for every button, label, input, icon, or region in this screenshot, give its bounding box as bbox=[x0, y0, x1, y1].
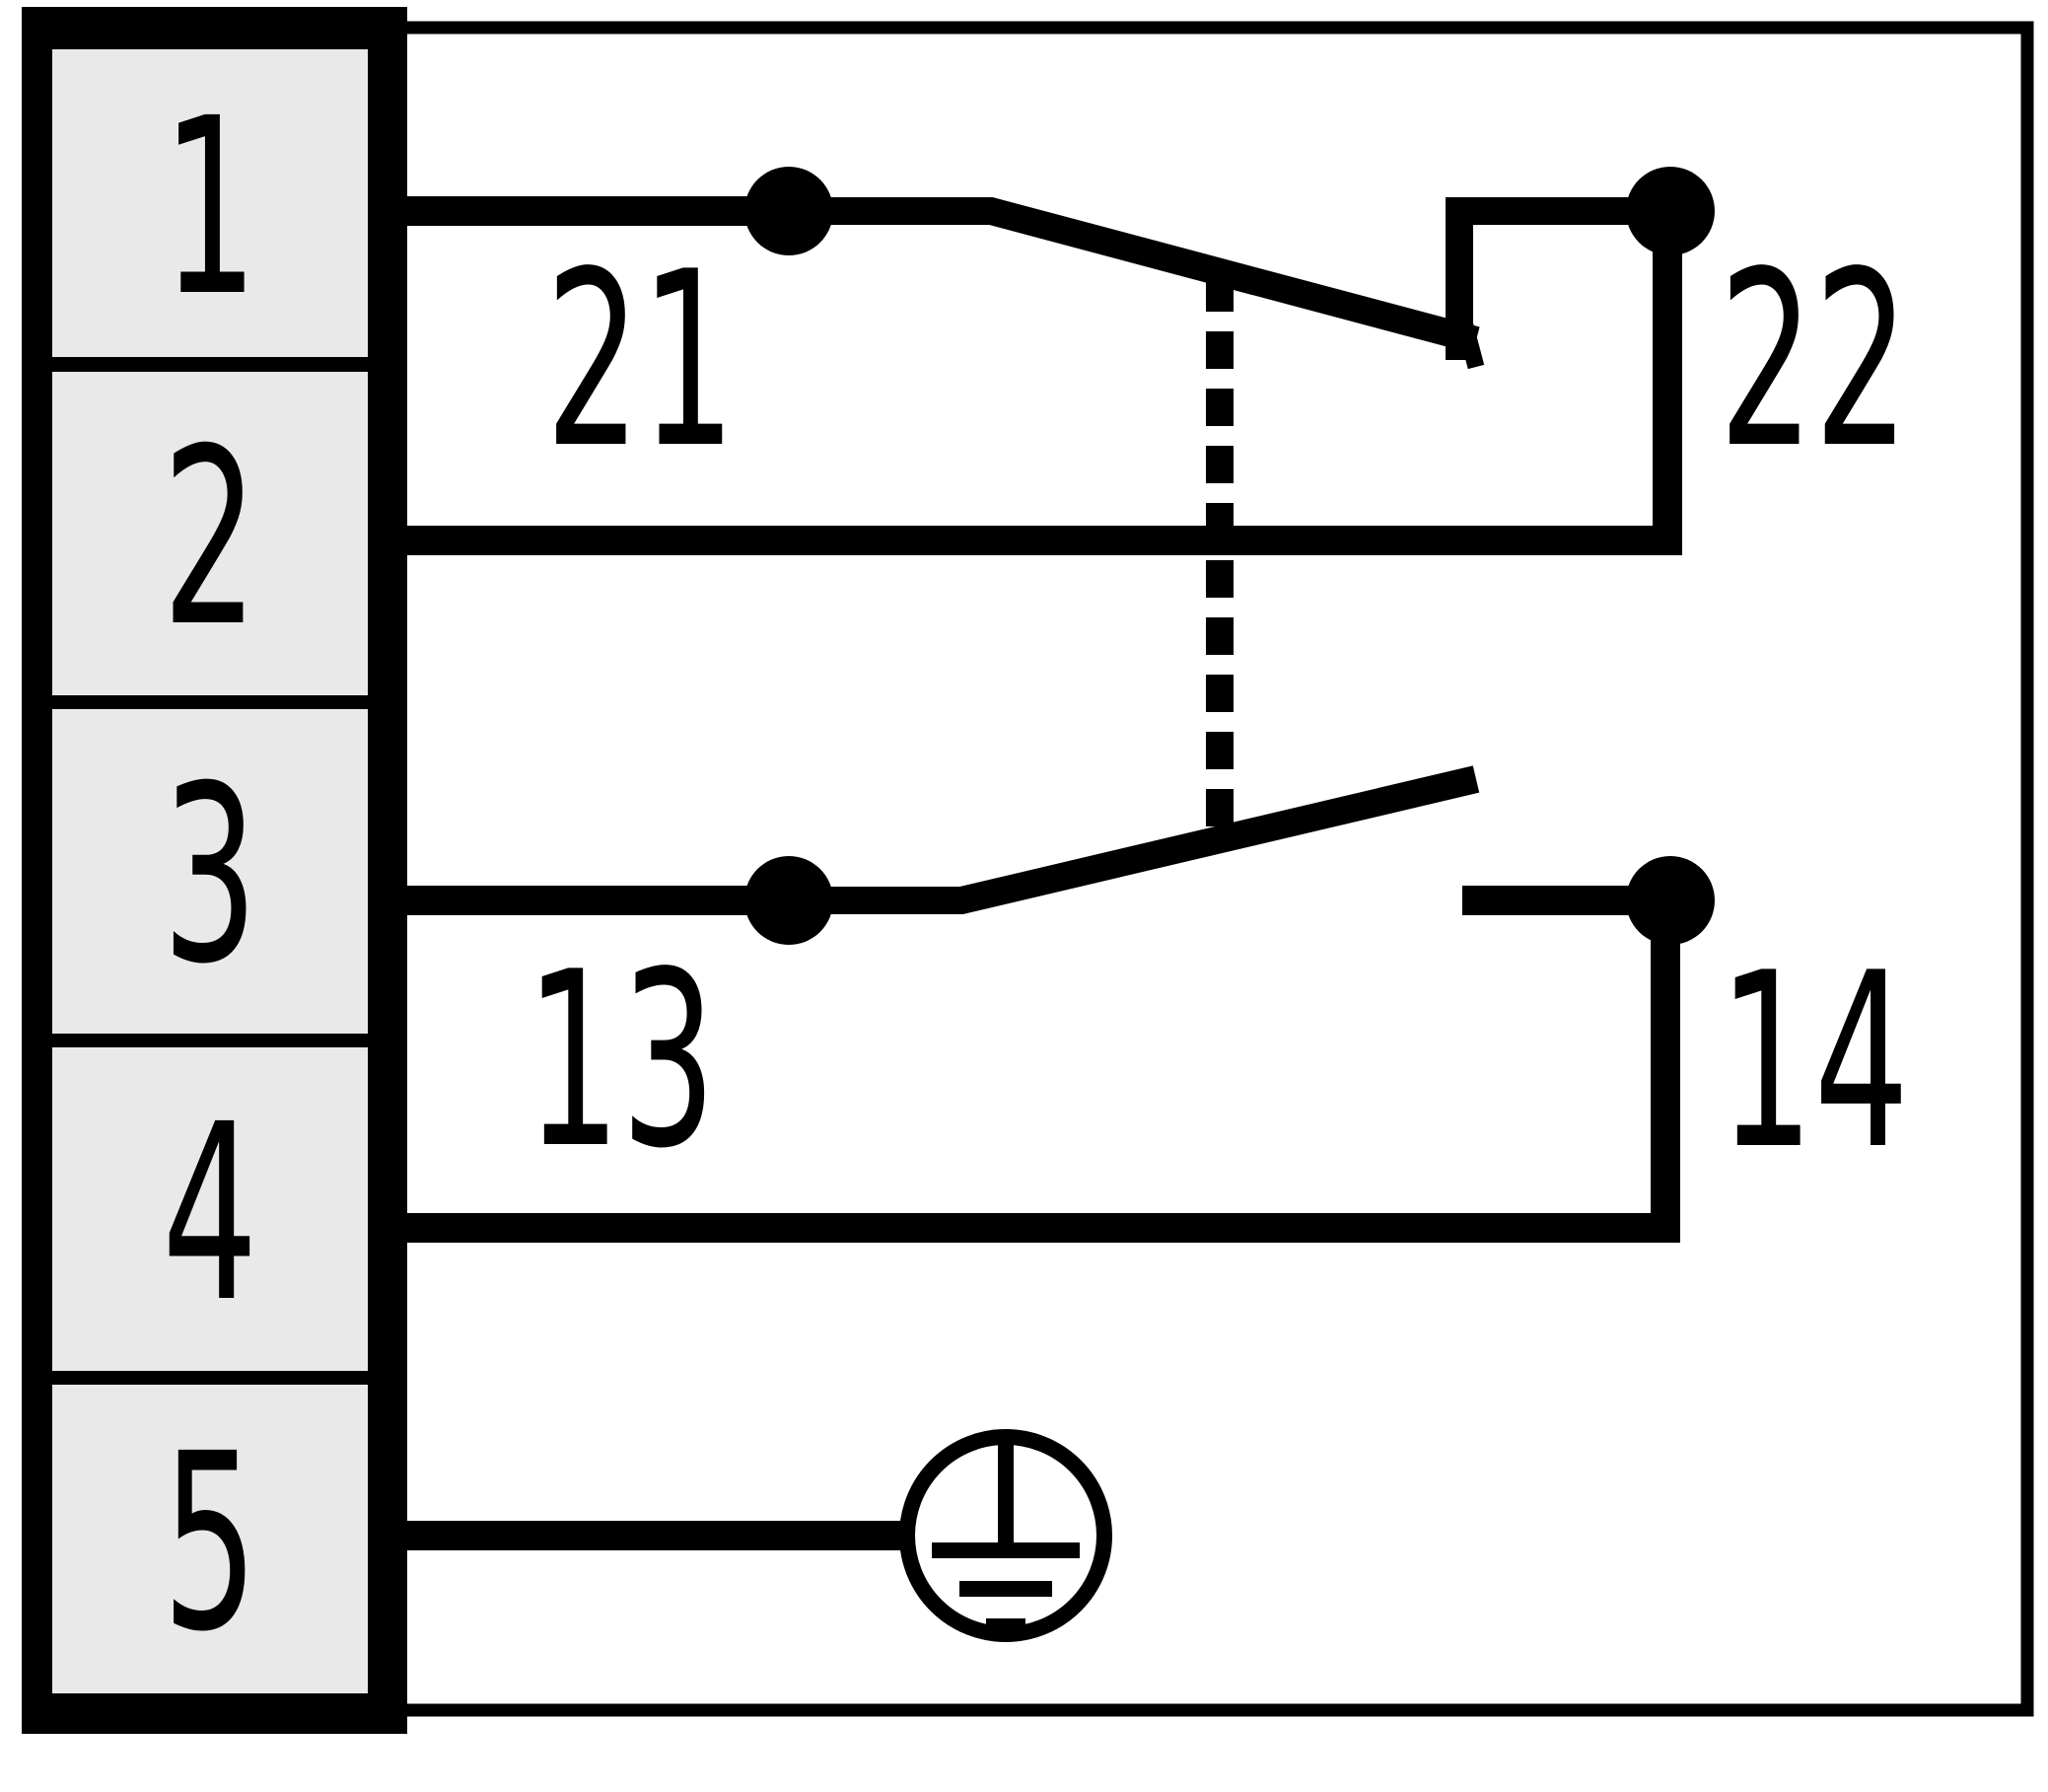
terminal-block: 1 2 3 4 5 bbox=[22, 7, 407, 1734]
terminal-number-1: 1 bbox=[162, 67, 257, 350]
contact-label-22: 22 bbox=[1719, 221, 1909, 502]
terminal-number-3: 3 bbox=[162, 735, 257, 1018]
diagram-canvas: 1 2 3 4 5 21 22 13 14 bbox=[0, 0, 2048, 1792]
nc-contact-stop-bracket bbox=[1459, 211, 1629, 360]
contact-label-21: 21 bbox=[545, 221, 736, 502]
contact-label-13: 13 bbox=[526, 921, 716, 1202]
nc-contact-21-22: 21 22 bbox=[407, 167, 1909, 540]
contact-dot-21 bbox=[744, 167, 833, 255]
terminal-number-5: 5 bbox=[162, 1402, 257, 1685]
nc-contact-lever bbox=[789, 211, 1476, 340]
contact-dot-13 bbox=[744, 856, 833, 945]
terminal-number-4: 4 bbox=[162, 1073, 257, 1356]
no-contact-lever bbox=[789, 779, 1476, 900]
contact-label-14: 14 bbox=[1719, 922, 1909, 1203]
protective-earth-icon bbox=[907, 1437, 1104, 1634]
wiring-diagram: 1 2 3 4 5 21 22 13 14 bbox=[0, 0, 2048, 1792]
earth-connection bbox=[407, 1437, 1104, 1634]
no-contact-13-14: 13 14 bbox=[407, 779, 1909, 1228]
terminal-number-2: 2 bbox=[162, 397, 257, 681]
